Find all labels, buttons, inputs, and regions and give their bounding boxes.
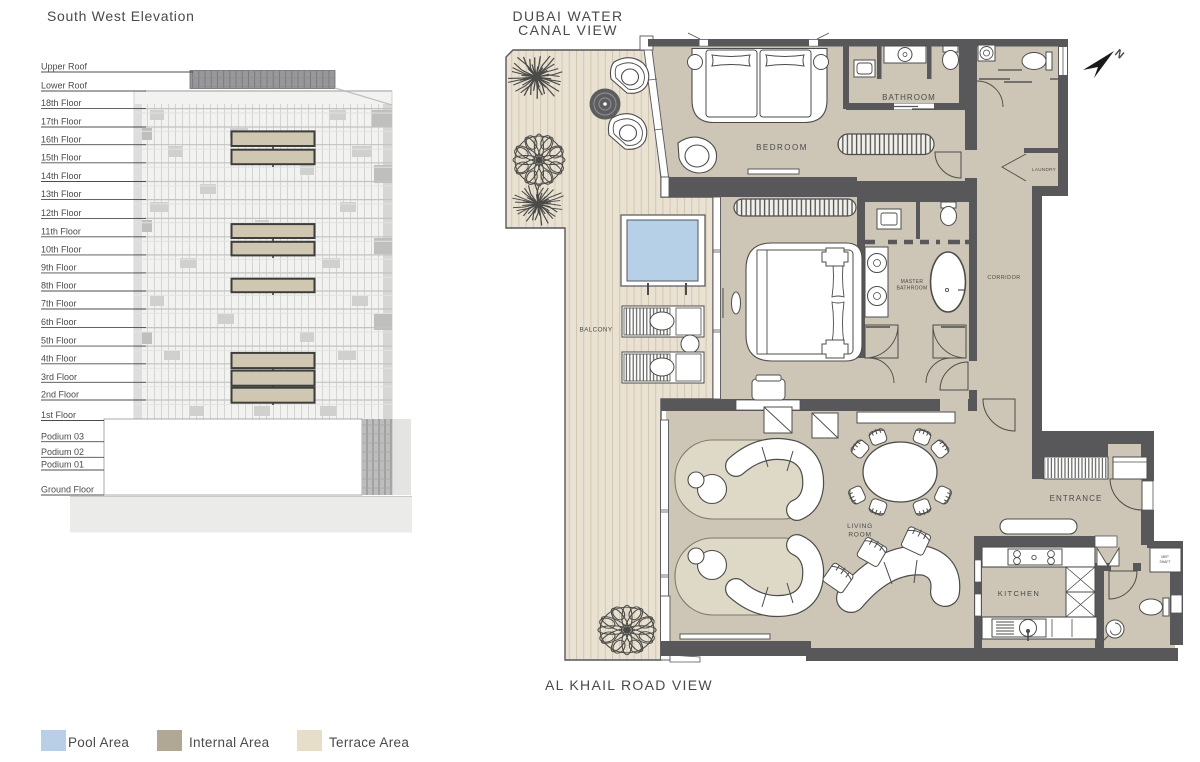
svg-text:9th Floor: 9th Floor xyxy=(41,263,77,273)
svg-text:7th Floor: 7th Floor xyxy=(41,299,77,309)
svg-text:South West Elevation: South West Elevation xyxy=(47,8,195,24)
svg-text:3rd Floor: 3rd Floor xyxy=(41,372,77,382)
svg-text:5th Floor: 5th Floor xyxy=(41,336,77,346)
svg-text:16th Floor: 16th Floor xyxy=(41,134,82,144)
svg-text:AL KHAIL ROAD VIEW: AL KHAIL ROAD VIEW xyxy=(545,677,713,693)
svg-text:BATHROOM: BATHROOM xyxy=(882,93,936,102)
svg-text:ENTRANCE: ENTRANCE xyxy=(1050,494,1103,503)
svg-text:LAUNDRY: LAUNDRY xyxy=(1032,167,1056,172)
svg-text:2nd Floor: 2nd Floor xyxy=(41,390,79,400)
svg-text:Lower Roof: Lower Roof xyxy=(41,81,88,91)
svg-text:CORRIDOR: CORRIDOR xyxy=(987,275,1020,281)
svg-text:Ground Floor: Ground Floor xyxy=(41,485,94,495)
svg-text:17th Floor: 17th Floor xyxy=(41,117,82,127)
svg-text:1st Floor: 1st Floor xyxy=(41,410,76,420)
svg-text:Internal Area: Internal Area xyxy=(189,735,270,750)
svg-text:18th Floor: 18th Floor xyxy=(41,98,82,108)
svg-text:KITCHEN: KITCHEN xyxy=(998,589,1040,598)
svg-text:Pool Area: Pool Area xyxy=(68,735,129,750)
svg-text:8th Floor: 8th Floor xyxy=(41,281,77,291)
svg-text:14th Floor: 14th Floor xyxy=(41,171,82,181)
svg-text:BALCONY: BALCONY xyxy=(580,327,613,334)
svg-text:4th Floor: 4th Floor xyxy=(41,353,77,363)
svg-text:Upper Roof: Upper Roof xyxy=(41,62,88,72)
svg-text:13th Floor: 13th Floor xyxy=(41,189,82,199)
svg-text:15th Floor: 15th Floor xyxy=(41,152,82,162)
svg-text:Terrace Area: Terrace Area xyxy=(329,735,409,750)
svg-text:Podium 01: Podium 01 xyxy=(41,460,84,470)
svg-text:MASTER: MASTER xyxy=(901,279,924,285)
svg-text:SHAFT: SHAFT xyxy=(1159,560,1170,564)
svg-text:11th Floor: 11th Floor xyxy=(41,226,81,236)
svg-text:Podium 02: Podium 02 xyxy=(41,447,84,457)
svg-text:MEP: MEP xyxy=(1161,555,1169,559)
svg-text:10th Floor: 10th Floor xyxy=(41,245,82,255)
svg-text:BATHROOM: BATHROOM xyxy=(897,286,928,292)
svg-text:LIVING: LIVING xyxy=(847,523,873,530)
svg-text:N: N xyxy=(1112,47,1126,61)
svg-text:12th Floor: 12th Floor xyxy=(41,208,82,218)
svg-text:BEDROOM: BEDROOM xyxy=(756,143,808,152)
svg-text:6th Floor: 6th Floor xyxy=(41,317,77,327)
svg-text:Podium 03: Podium 03 xyxy=(41,431,84,441)
svg-text:CANAL VIEW: CANAL VIEW xyxy=(518,22,618,38)
